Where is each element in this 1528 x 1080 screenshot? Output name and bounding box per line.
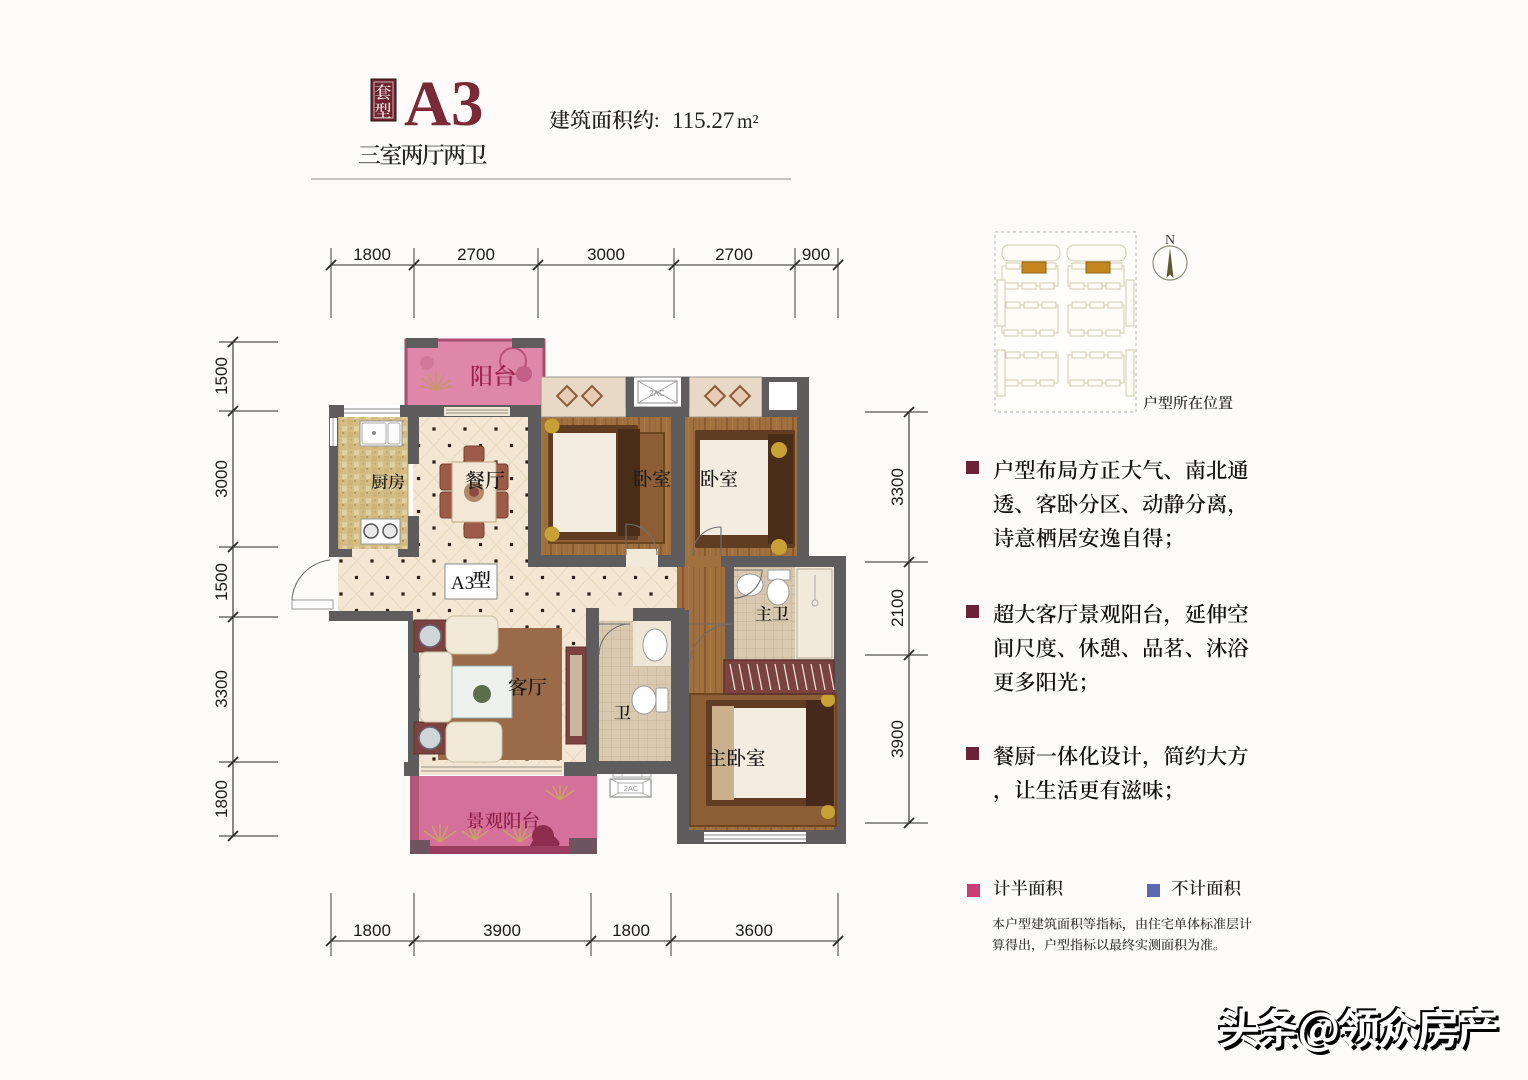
svg-text:3000: 3000 xyxy=(212,460,231,498)
svg-text:A3: A3 xyxy=(451,573,474,594)
svg-text:2100: 2100 xyxy=(888,589,907,627)
svg-text:2700: 2700 xyxy=(457,245,495,264)
svg-text:3600: 3600 xyxy=(735,921,773,940)
svg-text:1500: 1500 xyxy=(212,563,231,601)
svg-text:N: N xyxy=(1165,233,1175,248)
svg-text:1800: 1800 xyxy=(212,780,231,818)
svg-text:3900: 3900 xyxy=(483,921,521,940)
svg-text:m²: m² xyxy=(737,111,759,133)
svg-text:2AC: 2AC xyxy=(649,389,665,398)
svg-text:1800: 1800 xyxy=(353,245,391,264)
svg-text:1500: 1500 xyxy=(212,357,231,395)
svg-text:115.27: 115.27 xyxy=(672,108,734,133)
svg-text:3300: 3300 xyxy=(212,670,231,708)
svg-text:A3: A3 xyxy=(404,68,483,140)
svg-text::: : xyxy=(654,110,660,132)
svg-text:2AC: 2AC xyxy=(624,784,639,793)
svg-text:1800: 1800 xyxy=(353,921,391,940)
svg-text:900: 900 xyxy=(802,245,830,264)
svg-text:3300: 3300 xyxy=(888,468,907,506)
svg-text:2700: 2700 xyxy=(715,245,753,264)
svg-text:3900: 3900 xyxy=(888,720,907,758)
svg-text:1800: 1800 xyxy=(612,921,650,940)
svg-text:3000: 3000 xyxy=(587,245,625,264)
